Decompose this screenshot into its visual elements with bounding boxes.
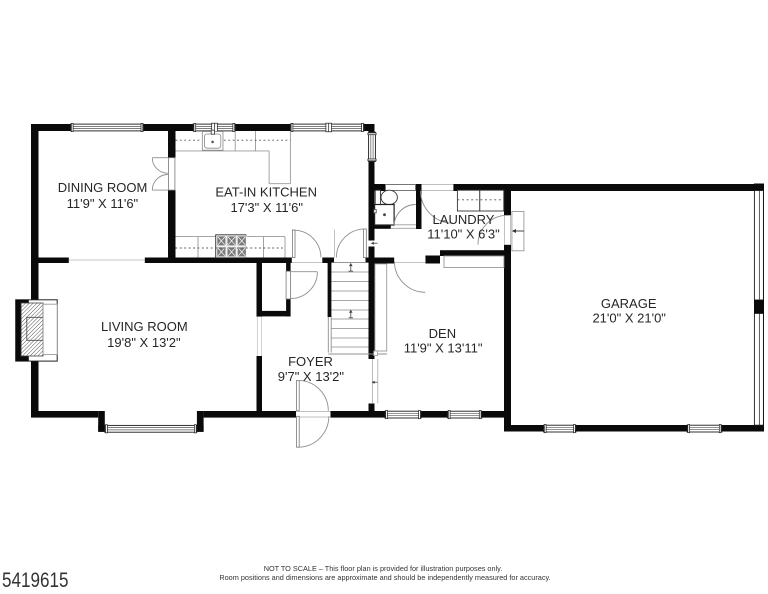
svg-text:EAT-IN KITCHEN: EAT-IN KITCHEN — [215, 185, 317, 200]
svg-text:FOYER: FOYER — [288, 354, 333, 369]
svg-text:DINING ROOM: DINING ROOM — [58, 180, 148, 195]
svg-text:LIVING ROOM: LIVING ROOM — [101, 319, 188, 334]
svg-text:19'8" X 13'2": 19'8" X 13'2" — [107, 335, 181, 350]
svg-text:21'0" X 21'0": 21'0" X 21'0" — [592, 311, 666, 326]
svg-text:17'3" X 11'6": 17'3" X 11'6" — [230, 200, 303, 215]
svg-text:NOT TO SCALE – This floor plan: NOT TO SCALE – This floor plan is provid… — [264, 564, 503, 573]
svg-text:11'9" X 13'11": 11'9" X 13'11" — [404, 341, 483, 356]
svg-text:DEN: DEN — [429, 326, 456, 341]
svg-text:5419615: 5419615 — [2, 569, 69, 592]
svg-text:GARAGE: GARAGE — [601, 296, 657, 311]
svg-text:Room positions and dimensions: Room positions and dimensions are approx… — [219, 573, 550, 582]
svg-text:9'7" X 13'2": 9'7" X 13'2" — [278, 369, 345, 384]
svg-text:11'9" X 11'6": 11'9" X 11'6" — [67, 196, 139, 211]
svg-text:LAUNDRY: LAUNDRY — [433, 212, 495, 227]
svg-text:11'10" X 6'3": 11'10" X 6'3" — [427, 227, 500, 242]
